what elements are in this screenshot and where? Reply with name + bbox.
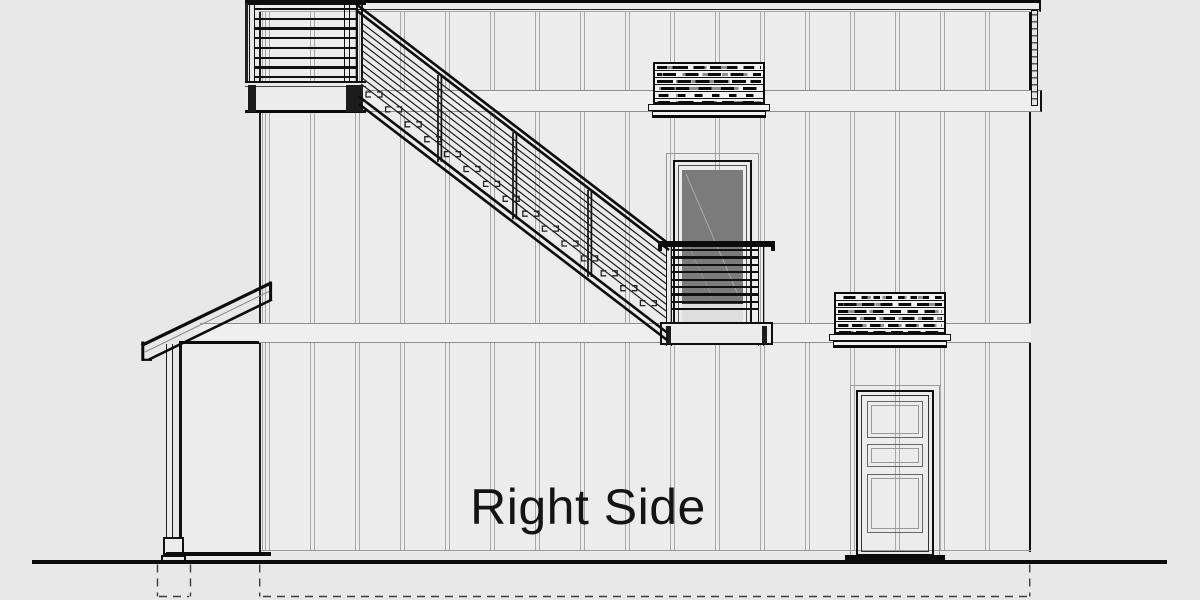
balcony-deck-band: [660, 322, 773, 345]
porch-post: [166, 344, 173, 537]
balcony-guardrails: [672, 246, 758, 326]
entry-door: [850, 385, 940, 558]
foundation-outline: [158, 565, 1030, 597]
elevation-label: Right Side: [453, 478, 723, 540]
door-panel-top: [867, 401, 923, 438]
vent-sill: [829, 334, 951, 341]
grade-line: [32, 560, 1167, 564]
roof-fascia: [259, 0, 1041, 12]
door-panel-middle: [867, 444, 923, 467]
porch-floor-edge: [166, 552, 271, 556]
deck-guardrails: [255, 5, 356, 83]
vent-slats: [834, 292, 946, 334]
vent-apron: [833, 341, 947, 348]
downspout: [1031, 10, 1039, 106]
porch-side-wall: [179, 341, 259, 553]
vent-sill: [648, 104, 770, 111]
siding-upper: [261, 12, 1029, 90]
elevation-drawing: Right Side: [0, 0, 1200, 600]
vent-slats: [653, 62, 765, 104]
fascia-trim-line: [259, 9, 1039, 10]
door-panel-bottom: [867, 474, 923, 533]
vent-apron: [652, 111, 766, 118]
balcony-railing: [658, 240, 775, 346]
deck-fascia: [245, 81, 366, 113]
upper-deck: [245, 0, 366, 113]
